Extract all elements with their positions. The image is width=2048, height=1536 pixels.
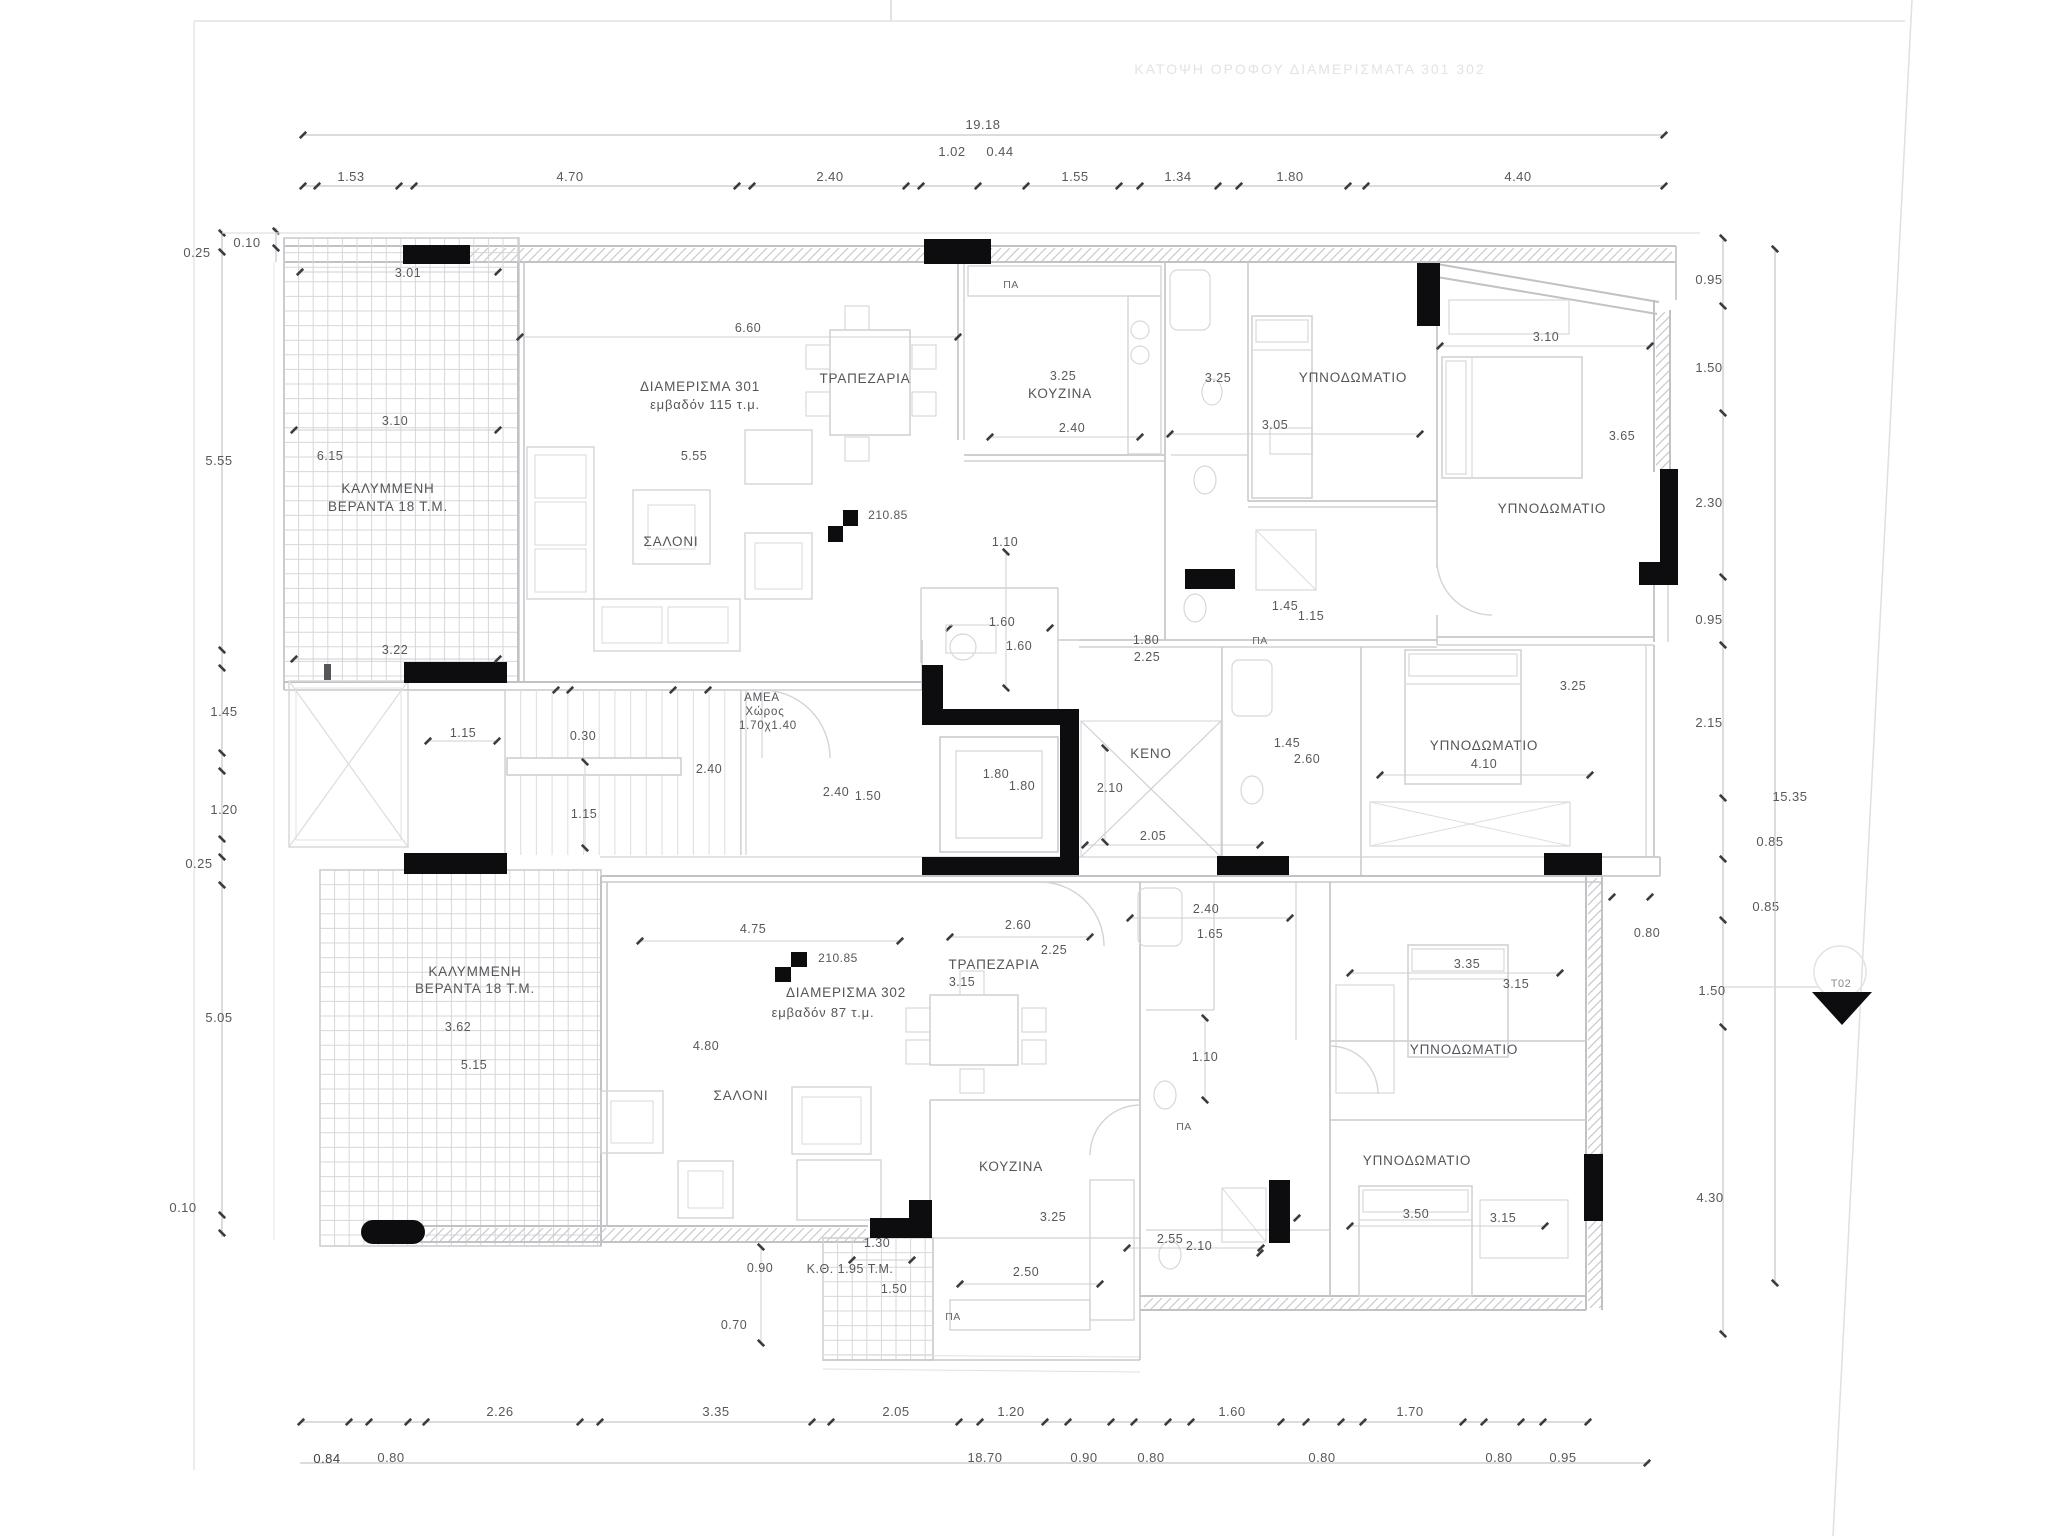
svg-text:3.05: 3.05 — [1262, 418, 1288, 432]
svg-text:3.50: 3.50 — [1403, 1207, 1429, 1221]
svg-text:3.62: 3.62 — [445, 1020, 471, 1034]
svg-text:3.25: 3.25 — [1205, 371, 1231, 385]
svg-text:ΒΕΡΑΝΤΑ 18 Τ.Μ.: ΒΕΡΑΝΤΑ 18 Τ.Μ. — [328, 499, 448, 514]
svg-text:1.10: 1.10 — [992, 535, 1018, 549]
svg-text:ΔΙΑΜΕΡΙΣΜΑ 301: ΔΙΑΜΕΡΙΣΜΑ 301 — [640, 379, 760, 394]
svg-text:3.10: 3.10 — [382, 414, 408, 428]
svg-text:3.22: 3.22 — [382, 643, 408, 657]
svg-text:Χώρος: Χώρος — [745, 706, 784, 718]
svg-text:1.80: 1.80 — [1133, 633, 1159, 647]
svg-text:εμβαδόν 115 τ.μ.: εμβαδόν 115 τ.μ. — [650, 397, 760, 412]
svg-text:0.25: 0.25 — [185, 856, 212, 871]
svg-text:5.15: 5.15 — [461, 1058, 487, 1072]
svg-text:ΠΑ: ΠΑ — [1176, 1121, 1192, 1133]
svg-text:ΠΑ: ΠΑ — [1252, 635, 1268, 647]
svg-text:5.55: 5.55 — [681, 449, 707, 463]
svg-text:0.70: 0.70 — [721, 1318, 747, 1332]
svg-text:1.20: 1.20 — [997, 1404, 1024, 1419]
svg-text:1.45: 1.45 — [1274, 736, 1300, 750]
svg-text:1.70χ1.40: 1.70χ1.40 — [739, 720, 797, 732]
svg-text:2.40: 2.40 — [823, 785, 849, 799]
svg-text:210.85: 210.85 — [868, 508, 908, 522]
svg-text:1.20: 1.20 — [210, 802, 237, 817]
svg-text:3.15: 3.15 — [949, 975, 975, 989]
svg-text:0.30: 0.30 — [570, 729, 596, 743]
svg-text:3.10: 3.10 — [1533, 330, 1559, 344]
svg-text:2.30: 2.30 — [1695, 495, 1722, 510]
svg-text:0.25: 0.25 — [183, 245, 210, 260]
svg-text:1.80: 1.80 — [1009, 779, 1035, 793]
svg-text:1.45: 1.45 — [1272, 599, 1298, 613]
svg-text:ΚΕΝΟ: ΚΕΝΟ — [1130, 746, 1171, 761]
svg-text:4.10: 4.10 — [1471, 757, 1497, 771]
svg-text:2.60: 2.60 — [1294, 752, 1320, 766]
svg-text:4.30: 4.30 — [1696, 1190, 1723, 1205]
svg-text:1.65: 1.65 — [1197, 927, 1223, 941]
svg-text:2.15: 2.15 — [1695, 715, 1722, 730]
svg-text:1.45: 1.45 — [210, 704, 237, 719]
svg-text:0.95: 0.95 — [1549, 1450, 1576, 1465]
svg-text:3.01: 3.01 — [395, 266, 421, 280]
svg-text:2.05: 2.05 — [1140, 829, 1166, 843]
svg-text:1.02: 1.02 — [938, 144, 965, 159]
svg-text:0.95: 0.95 — [1695, 272, 1722, 287]
svg-text:3.15: 3.15 — [1503, 977, 1529, 991]
svg-text:ΥΠΝΟΔΩΜΑΤΙΟ: ΥΠΝΟΔΩΜΑΤΙΟ — [1363, 1153, 1471, 1168]
svg-text:2.25: 2.25 — [1134, 650, 1160, 664]
svg-text:5.05: 5.05 — [205, 1010, 232, 1025]
svg-text:0.80: 0.80 — [1634, 926, 1660, 940]
svg-text:0.90: 0.90 — [747, 1261, 773, 1275]
svg-text:0.80: 0.80 — [1137, 1450, 1164, 1465]
svg-text:3.35: 3.35 — [702, 1404, 729, 1419]
svg-text:ΚΟΥΖΙΝΑ: ΚΟΥΖΙΝΑ — [979, 1159, 1043, 1174]
svg-text:1.50: 1.50 — [1695, 360, 1722, 375]
svg-text:ΥΠΝΟΔΩΜΑΤΙΟ: ΥΠΝΟΔΩΜΑΤΙΟ — [1299, 370, 1407, 385]
svg-text:ΚΑΤΟΨΗ ΟΡΟΦΟΥ ΔΙΑΜΕΡΙΣΜΑΤΑ 3: ΚΑΤΟΨΗ ΟΡΟΦΟΥ ΔΙΑΜΕΡΙΣΜΑΤΑ 301 302 — [1134, 61, 1485, 77]
svg-text:0.84: 0.84 — [313, 1451, 340, 1466]
svg-text:2.40: 2.40 — [1059, 421, 1085, 435]
svg-text:18.70: 18.70 — [967, 1450, 1002, 1465]
svg-text:0.44: 0.44 — [986, 144, 1013, 159]
svg-text:ΠΑ: ΠΑ — [1003, 279, 1019, 291]
svg-text:ΥΠΝΟΔΩΜΑΤΙΟ: ΥΠΝΟΔΩΜΑΤΙΟ — [1498, 501, 1606, 516]
svg-text:3.25: 3.25 — [1560, 679, 1586, 693]
svg-text:2.40: 2.40 — [816, 169, 843, 184]
svg-text:1.30: 1.30 — [864, 1236, 890, 1250]
svg-text:0.80: 0.80 — [1308, 1450, 1335, 1465]
svg-text:2.10: 2.10 — [1097, 781, 1123, 795]
svg-text:3.25: 3.25 — [1050, 369, 1076, 383]
svg-text:1.50: 1.50 — [1698, 983, 1725, 998]
svg-text:15.35: 15.35 — [1772, 789, 1807, 804]
svg-text:1.55: 1.55 — [1061, 169, 1088, 184]
svg-text:1.15: 1.15 — [450, 726, 476, 740]
svg-text:2.10: 2.10 — [1186, 1239, 1212, 1253]
svg-text:1.80: 1.80 — [1276, 169, 1303, 184]
svg-text:1.34: 1.34 — [1164, 169, 1191, 184]
svg-text:0.80: 0.80 — [1485, 1450, 1512, 1465]
svg-text:0.95: 0.95 — [1695, 612, 1722, 627]
svg-text:ΥΠΝΟΔΩΜΑΤΙΟ: ΥΠΝΟΔΩΜΑΤΙΟ — [1430, 738, 1538, 753]
svg-text:2.26: 2.26 — [486, 1404, 513, 1419]
svg-text:2.05: 2.05 — [882, 1404, 909, 1419]
svg-text:2.55: 2.55 — [1157, 1232, 1183, 1246]
svg-text:4.40: 4.40 — [1504, 169, 1531, 184]
svg-text:2.50: 2.50 — [1013, 1265, 1039, 1279]
svg-text:T02: T02 — [1831, 978, 1851, 990]
svg-text:210.85: 210.85 — [818, 951, 858, 965]
svg-text:1.50: 1.50 — [881, 1282, 907, 1296]
svg-text:3.35: 3.35 — [1454, 957, 1480, 971]
svg-text:ΤΡΑΠΕΖΑΡΙΑ: ΤΡΑΠΕΖΑΡΙΑ — [819, 371, 910, 386]
svg-text:Κ.Θ. 1.95 Τ.Μ.: Κ.Θ. 1.95 Τ.Μ. — [807, 1262, 894, 1276]
svg-text:1.15: 1.15 — [571, 807, 597, 821]
svg-text:1.60: 1.60 — [1218, 1404, 1245, 1419]
svg-text:3.25: 3.25 — [1040, 1210, 1066, 1224]
svg-text:2.40: 2.40 — [696, 762, 722, 776]
svg-text:3.15: 3.15 — [1490, 1211, 1516, 1225]
svg-text:0.10: 0.10 — [233, 235, 260, 250]
svg-text:1.80: 1.80 — [983, 767, 1009, 781]
svg-text:1.53: 1.53 — [337, 169, 364, 184]
svg-text:4.70: 4.70 — [556, 169, 583, 184]
svg-text:4.80: 4.80 — [693, 1039, 719, 1053]
svg-text:ΚΑΛΥΜΜΕΝΗ: ΚΑΛΥΜΜΕΝΗ — [428, 964, 521, 979]
svg-text:ΤΡΑΠΕΖΑΡΙΑ: ΤΡΑΠΕΖΑΡΙΑ — [948, 957, 1039, 972]
svg-text:0.90: 0.90 — [1070, 1450, 1097, 1465]
svg-text:1.15: 1.15 — [1298, 609, 1324, 623]
svg-text:0.10: 0.10 — [169, 1200, 196, 1215]
svg-text:εμβαδόν 87 τ.μ.: εμβαδόν 87 τ.μ. — [772, 1005, 875, 1020]
svg-text:ΒΕΡΑΝΤΑ 18 Τ.Μ.: ΒΕΡΑΝΤΑ 18 Τ.Μ. — [415, 981, 535, 996]
svg-text:3.65: 3.65 — [1609, 429, 1635, 443]
svg-text:ΚΑΛΥΜΜΕΝΗ: ΚΑΛΥΜΜΕΝΗ — [341, 481, 434, 496]
svg-text:4.75: 4.75 — [740, 922, 766, 936]
svg-text:6.15: 6.15 — [317, 449, 343, 463]
svg-text:0.80: 0.80 — [377, 1450, 404, 1465]
svg-text:2.60: 2.60 — [1005, 918, 1031, 932]
svg-text:2.25: 2.25 — [1041, 943, 1067, 957]
svg-text:ΣΑΛΟΝΙ: ΣΑΛΟΝΙ — [714, 1088, 769, 1103]
svg-text:ΔΙΑΜΕΡΙΣΜΑ 302: ΔΙΑΜΕΡΙΣΜΑ 302 — [786, 985, 906, 1000]
svg-text:1.50: 1.50 — [855, 789, 881, 803]
svg-text:ΑΜΕΑ: ΑΜΕΑ — [744, 692, 780, 704]
svg-text:ΣΑΛΟΝΙ: ΣΑΛΟΝΙ — [644, 534, 699, 549]
svg-text:ΥΠΝΟΔΩΜΑΤΙΟ: ΥΠΝΟΔΩΜΑΤΙΟ — [1410, 1042, 1518, 1057]
svg-text:2.40: 2.40 — [1193, 902, 1219, 916]
svg-text:1.60: 1.60 — [1006, 639, 1032, 653]
svg-text:1.60: 1.60 — [989, 615, 1015, 629]
svg-text:19.18: 19.18 — [965, 117, 1000, 132]
svg-text:1.70: 1.70 — [1396, 1404, 1423, 1419]
svg-text:ΚΟΥΖΙΝΑ: ΚΟΥΖΙΝΑ — [1028, 386, 1092, 401]
svg-text:0.85: 0.85 — [1756, 834, 1783, 849]
svg-text:1.10: 1.10 — [1192, 1050, 1218, 1064]
svg-text:5.55: 5.55 — [205, 453, 232, 468]
svg-text:6.60: 6.60 — [735, 321, 761, 335]
svg-text:ΠΑ: ΠΑ — [945, 1311, 961, 1323]
